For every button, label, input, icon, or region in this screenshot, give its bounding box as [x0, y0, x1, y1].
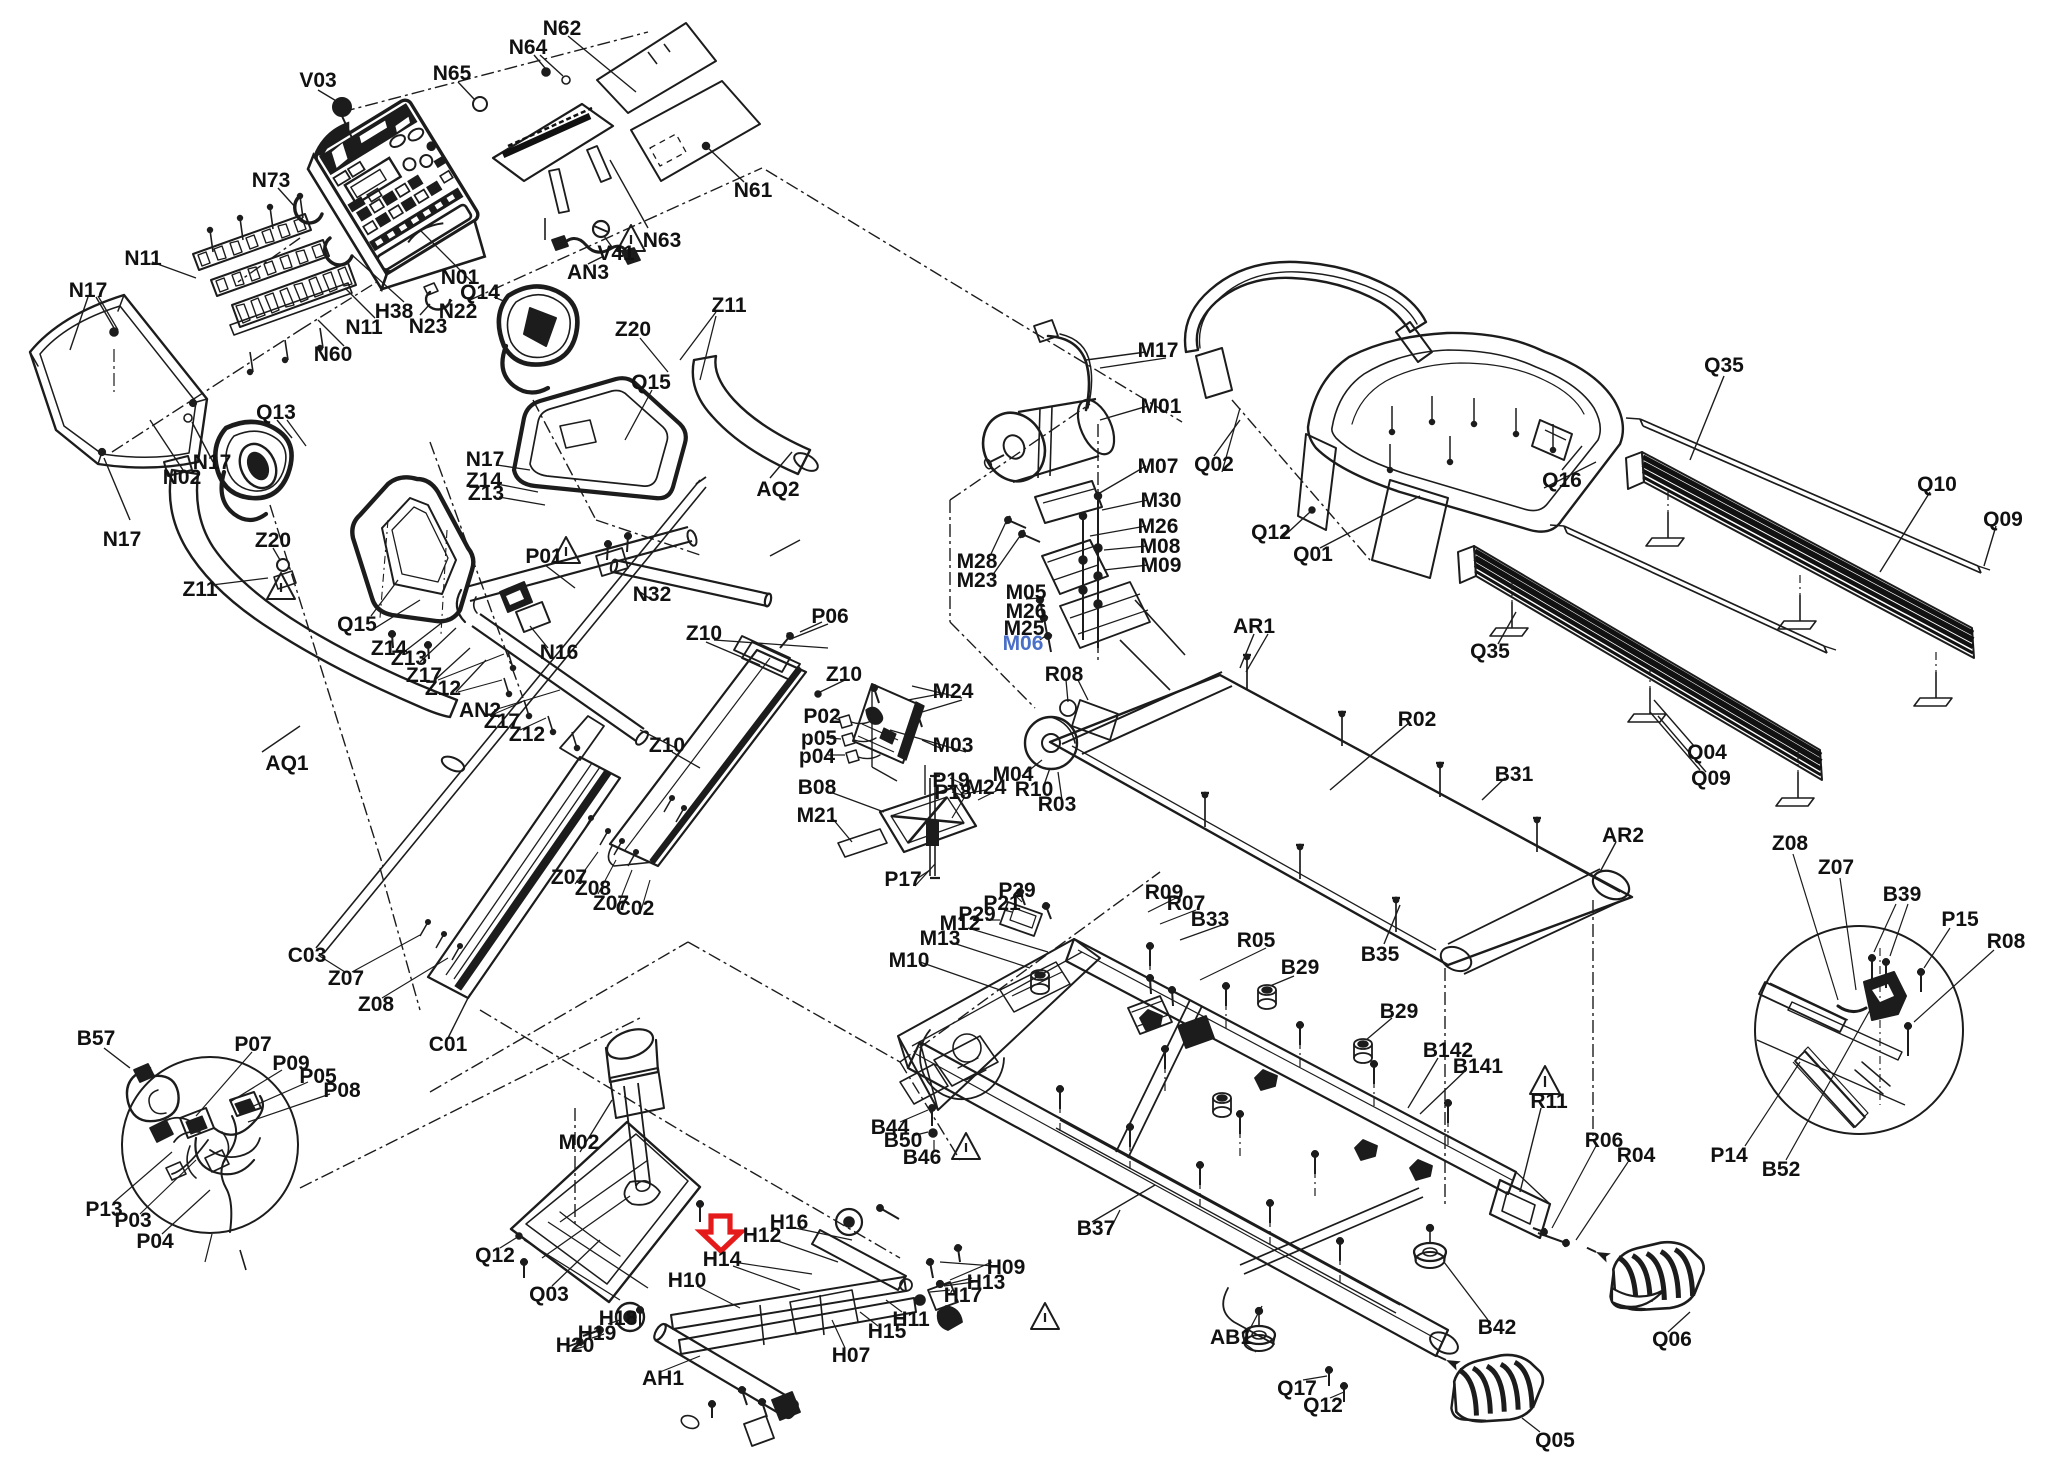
svg-text:N32: N32: [633, 583, 672, 606]
svg-text:Z10: Z10: [649, 734, 685, 757]
svg-text:H20: H20: [556, 1334, 595, 1357]
svg-text:Q12: Q12: [1303, 1394, 1343, 1417]
svg-text:Z10: Z10: [686, 622, 722, 645]
svg-text:B29: B29: [1380, 1000, 1419, 1023]
svg-text:AR1: AR1: [1233, 615, 1275, 638]
svg-text:Q02: Q02: [1194, 453, 1234, 476]
svg-text:M13: M13: [920, 927, 961, 950]
svg-text:B52: B52: [1762, 1158, 1801, 1181]
svg-text:Z08: Z08: [358, 993, 395, 1016]
svg-text:N11: N11: [124, 247, 162, 270]
svg-text:AB1: AB1: [1210, 1326, 1252, 1349]
svg-text:H12: H12: [743, 1224, 782, 1247]
svg-text:N17: N17: [103, 528, 142, 551]
svg-text:AQ1: AQ1: [265, 752, 309, 775]
svg-text:P15: P15: [1941, 908, 1979, 931]
svg-text:M06: M06: [1003, 632, 1044, 655]
svg-text:B39: B39: [1883, 883, 1922, 906]
svg-text:B35: B35: [1361, 943, 1400, 966]
svg-text:M02: M02: [559, 1131, 600, 1154]
svg-text:P03: P03: [114, 1209, 151, 1232]
svg-text:N65: N65: [433, 62, 472, 85]
svg-text:H10: H10: [668, 1269, 707, 1292]
svg-text:M07: M07: [1138, 455, 1179, 478]
svg-text:N73: N73: [252, 169, 291, 192]
svg-text:P02: P02: [803, 705, 840, 728]
svg-text:B31: B31: [1495, 763, 1534, 786]
svg-text:M03: M03: [933, 734, 974, 757]
svg-text:P17: P17: [884, 868, 921, 891]
svg-text:AR2: AR2: [1602, 824, 1644, 847]
svg-text:P07: P07: [234, 1033, 271, 1056]
svg-text:B08: B08: [798, 776, 837, 799]
svg-text:B42: B42: [1478, 1316, 1517, 1339]
svg-text:N17: N17: [69, 279, 108, 302]
svg-text:N63: N63: [643, 229, 682, 252]
svg-text:R08: R08: [1987, 930, 2026, 953]
svg-text:Q15: Q15: [631, 371, 671, 394]
svg-text:Q35: Q35: [1704, 354, 1744, 377]
svg-text:B141: B141: [1453, 1055, 1504, 1078]
svg-text:Z10: Z10: [826, 663, 862, 686]
svg-text:M09: M09: [1141, 554, 1182, 577]
svg-text:H07: H07: [832, 1344, 871, 1367]
svg-text:Q09: Q09: [1983, 508, 2023, 531]
svg-text:M21: M21: [797, 804, 838, 827]
svg-text:R05: R05: [1237, 929, 1276, 952]
svg-text:R03: R03: [1038, 793, 1077, 816]
svg-text:Z11: Z11: [182, 578, 217, 601]
svg-text:Q09: Q09: [1691, 767, 1731, 790]
svg-text:Z12: Z12: [509, 723, 545, 746]
svg-text:C03: C03: [288, 944, 327, 967]
svg-text:R08: R08: [1045, 663, 1084, 686]
svg-text:Q12: Q12: [1251, 521, 1291, 544]
svg-text:P08: P08: [323, 1079, 361, 1102]
svg-text:R11: R11: [1530, 1090, 1568, 1113]
svg-text:M17: M17: [1138, 339, 1179, 362]
svg-text:AQ2: AQ2: [756, 478, 799, 501]
svg-text:B33: B33: [1191, 908, 1230, 931]
svg-text:Z20: Z20: [255, 529, 291, 552]
svg-text:AH1: AH1: [642, 1367, 684, 1390]
svg-text:Q35: Q35: [1470, 640, 1510, 663]
svg-text:Q14: Q14: [460, 281, 500, 304]
svg-text:Z13: Z13: [468, 482, 504, 505]
svg-text:Z07: Z07: [328, 967, 364, 990]
svg-text:N16: N16: [540, 641, 579, 664]
svg-text:Z07: Z07: [1818, 856, 1854, 879]
svg-text:B29: B29: [1281, 956, 1320, 979]
svg-text:Z12: Z12: [425, 677, 461, 700]
svg-text:N17: N17: [466, 448, 505, 471]
svg-text:Q04: Q04: [1687, 741, 1727, 764]
svg-text:Q03: Q03: [529, 1283, 569, 1306]
svg-text:B57: B57: [77, 1027, 116, 1050]
svg-text:Z11: Z11: [711, 294, 746, 317]
svg-text:M30: M30: [1141, 489, 1182, 512]
svg-text:Q13: Q13: [256, 401, 296, 424]
svg-text:M23: M23: [957, 569, 998, 592]
svg-text:B37: B37: [1077, 1217, 1116, 1240]
svg-text:N61: N61: [734, 179, 773, 202]
svg-text:Z08: Z08: [1772, 832, 1809, 855]
svg-text:AN3: AN3: [567, 261, 609, 284]
svg-text:N17: N17: [193, 451, 232, 474]
svg-text:N62: N62: [543, 17, 582, 40]
svg-text:N64: N64: [509, 36, 548, 59]
svg-text:Q15: Q15: [337, 613, 377, 636]
svg-text:B46: B46: [903, 1146, 942, 1169]
svg-text:P06: P06: [811, 605, 848, 628]
svg-text:H11: H11: [892, 1308, 930, 1331]
svg-text:M10: M10: [889, 949, 930, 972]
svg-text:P04: P04: [136, 1230, 174, 1253]
svg-text:N60: N60: [314, 343, 353, 366]
svg-text:Z20: Z20: [615, 318, 651, 341]
svg-text:Q16: Q16: [1542, 469, 1582, 492]
svg-text:H09: H09: [987, 1256, 1026, 1279]
svg-text:M24: M24: [933, 680, 974, 703]
svg-text:H14: H14: [703, 1248, 742, 1271]
svg-text:p04: p04: [799, 745, 836, 768]
svg-text:N11: N11: [345, 316, 383, 339]
svg-text:R02: R02: [1398, 708, 1437, 731]
svg-text:R04: R04: [1617, 1144, 1656, 1167]
svg-text:C02: C02: [616, 897, 655, 920]
svg-text:V03: V03: [299, 69, 336, 92]
svg-text:Q01: Q01: [1293, 543, 1333, 566]
svg-text:Q05: Q05: [1535, 1429, 1575, 1452]
svg-text:M01: M01: [1141, 395, 1182, 418]
svg-text:C01: C01: [429, 1033, 468, 1056]
svg-text:Q12: Q12: [475, 1244, 515, 1267]
svg-text:P01: P01: [525, 545, 563, 568]
svg-text:Q10: Q10: [1917, 473, 1957, 496]
svg-text:P14: P14: [1710, 1144, 1748, 1167]
svg-text:Q06: Q06: [1652, 1328, 1692, 1351]
